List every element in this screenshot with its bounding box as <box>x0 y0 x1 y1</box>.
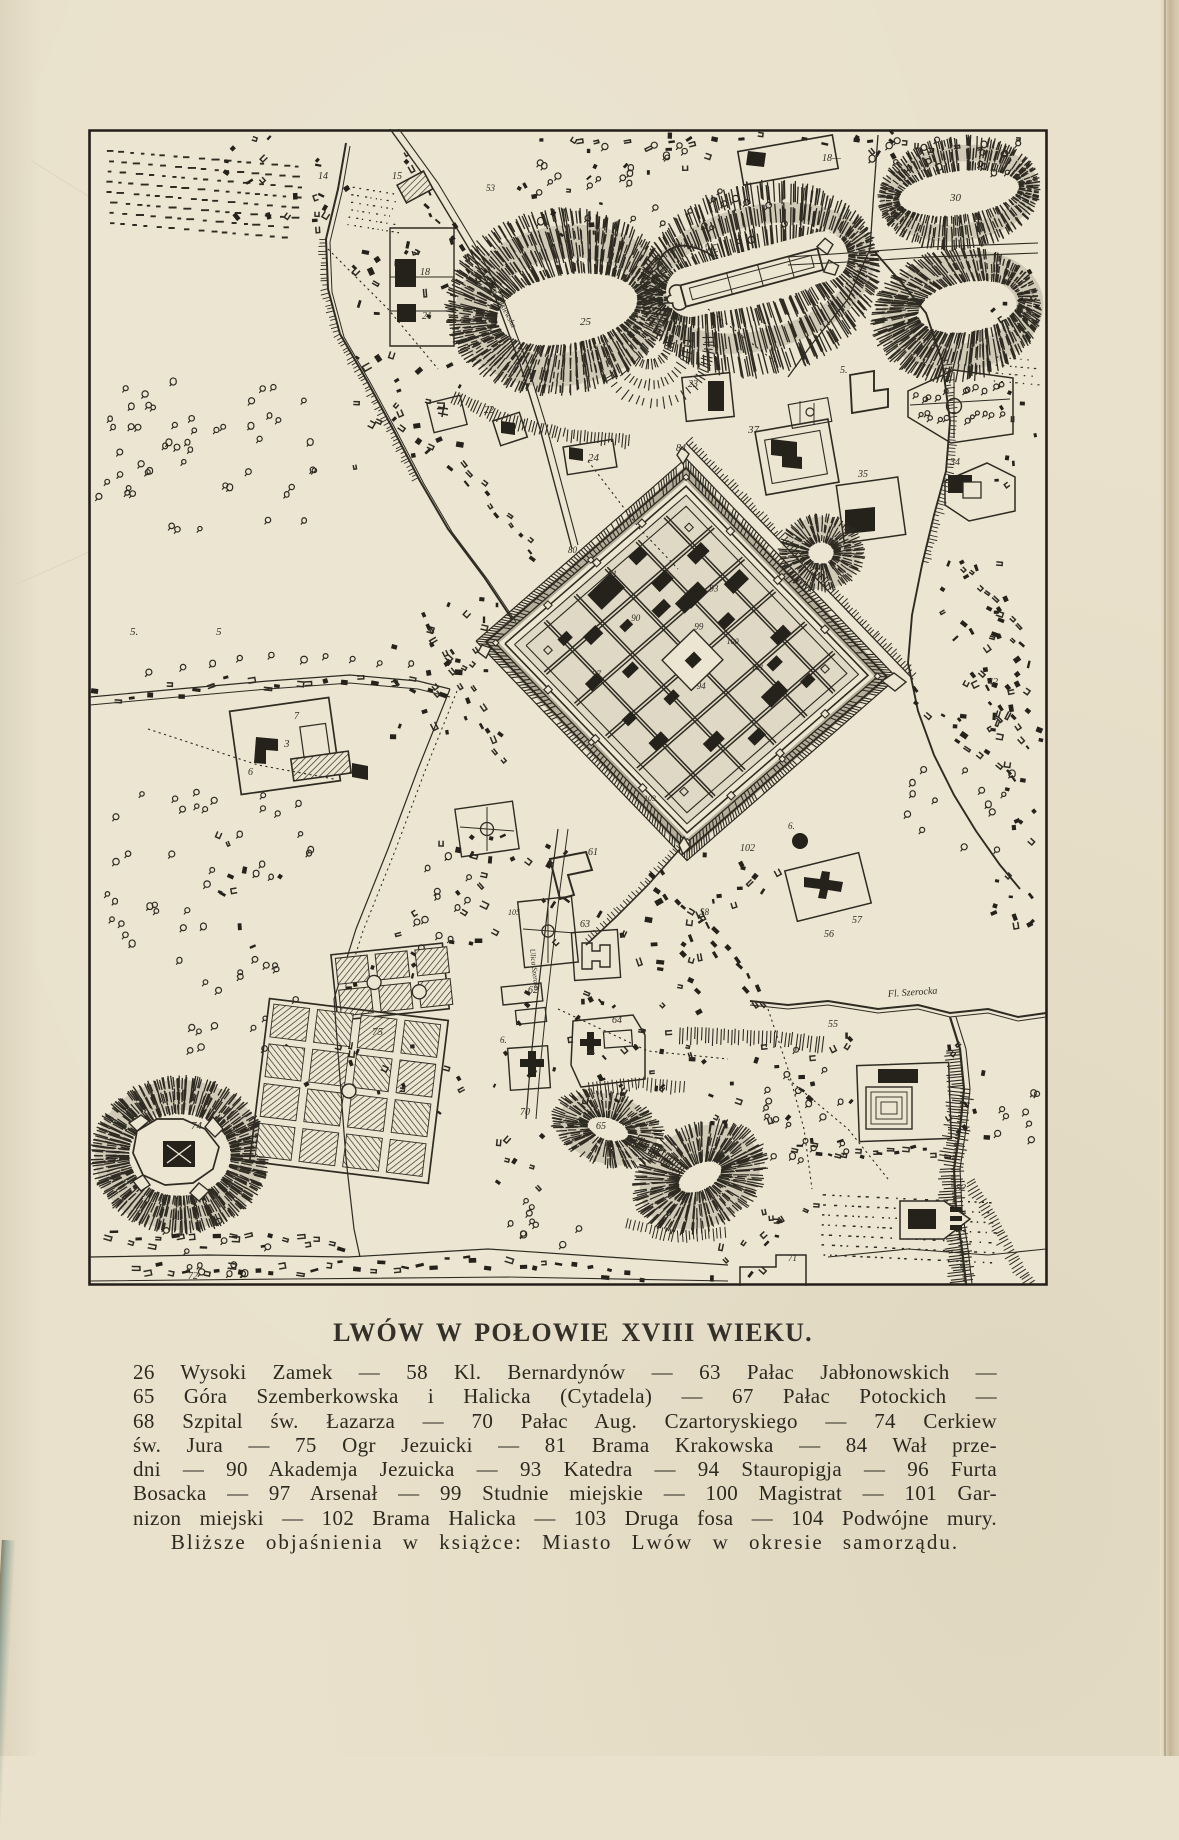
svg-text:7: 7 <box>294 711 300 722</box>
svg-text:18: 18 <box>420 267 430 278</box>
svg-text:25: 25 <box>580 316 592 328</box>
svg-text:56: 56 <box>824 929 834 940</box>
svg-text:102: 102 <box>740 843 755 854</box>
svg-text:5: 5 <box>216 626 222 638</box>
svg-text:90: 90 <box>631 613 641 623</box>
svg-text:6: 6 <box>248 767 253 778</box>
svg-text:5.: 5. <box>130 626 138 638</box>
svg-text:84: 84 <box>676 443 686 454</box>
svg-text:70: 70 <box>520 1107 530 1118</box>
svg-text:5.: 5. <box>840 365 848 376</box>
svg-text:63: 63 <box>580 919 590 930</box>
svg-text:80: 80 <box>568 545 578 555</box>
svg-text:64: 64 <box>612 1015 622 1026</box>
svg-text:15: 15 <box>392 171 402 182</box>
svg-text:96: 96 <box>832 541 842 552</box>
svg-text:103: 103 <box>644 794 656 803</box>
svg-text:75: 75 <box>372 1026 384 1038</box>
svg-text:94: 94 <box>697 681 707 691</box>
svg-text:65: 65 <box>596 1121 606 1132</box>
svg-text:6.: 6. <box>788 821 795 831</box>
svg-text:52: 52 <box>956 1183 966 1194</box>
svg-text:24: 24 <box>588 452 600 464</box>
svg-text:55: 55 <box>828 1019 838 1030</box>
svg-text:71: 71 <box>788 1253 797 1263</box>
svg-text:81: 81 <box>608 569 617 579</box>
svg-text:Fl. Szerocka: Fl. Szerocka <box>886 986 937 1001</box>
svg-text:97: 97 <box>592 669 602 679</box>
svg-text:30: 30 <box>949 192 962 204</box>
svg-text:93: 93 <box>709 584 719 594</box>
svg-text:35: 35 <box>857 469 868 480</box>
svg-text:14: 14 <box>318 171 328 182</box>
svg-text:34: 34 <box>949 457 960 468</box>
svg-text:21: 21 <box>422 311 432 322</box>
svg-text:66: 66 <box>660 1157 670 1168</box>
svg-text:6.: 6. <box>500 1035 507 1045</box>
svg-text:74.: 74. <box>191 1120 205 1132</box>
svg-text:105: 105 <box>508 908 520 917</box>
svg-text:101: 101 <box>752 663 764 672</box>
svg-text:72: 72 <box>188 1271 198 1282</box>
svg-text:99: 99 <box>694 622 704 632</box>
svg-text:18—: 18— <box>822 153 841 164</box>
svg-text:22: 22 <box>484 405 494 416</box>
svg-text:100: 100 <box>727 637 739 646</box>
svg-text:61: 61 <box>588 847 598 858</box>
svg-text:37: 37 <box>747 424 760 436</box>
svg-text:53: 53 <box>486 183 496 193</box>
svg-text:57: 57 <box>852 915 863 926</box>
svg-text:23: 23 <box>688 379 698 390</box>
svg-text:3: 3 <box>283 738 290 750</box>
